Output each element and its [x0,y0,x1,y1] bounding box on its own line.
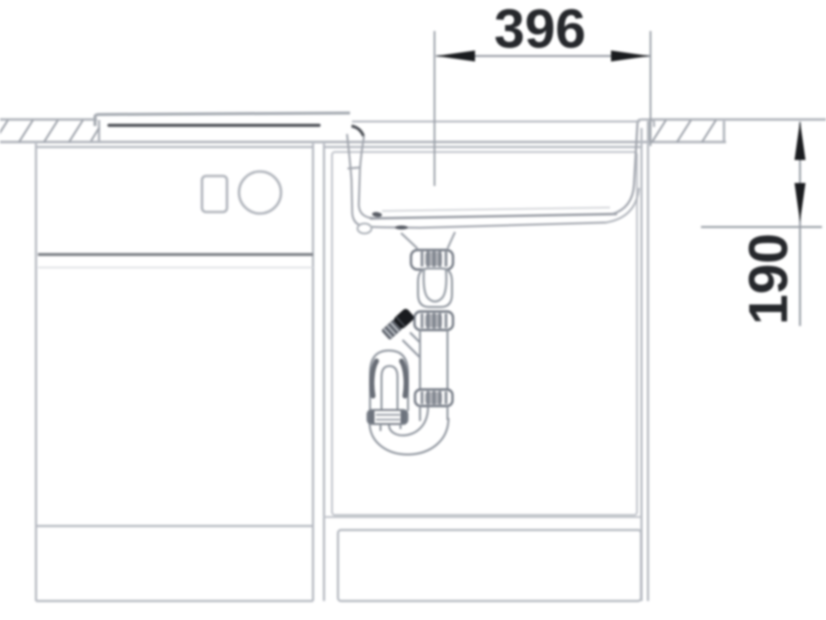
svg-text:396: 396 [494,0,586,60]
svg-text:190: 190 [737,233,799,325]
